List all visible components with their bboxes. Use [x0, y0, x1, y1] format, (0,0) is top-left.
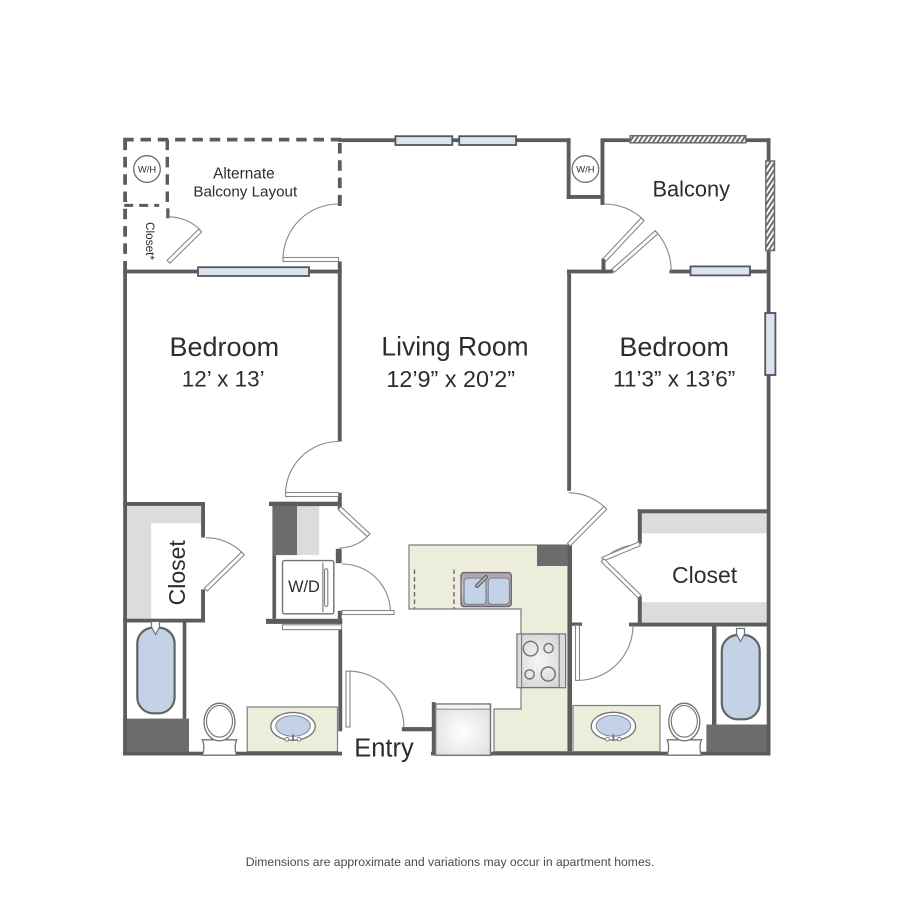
svg-text:Balcony: Balcony: [653, 176, 731, 201]
svg-text:Entry: Entry: [354, 735, 414, 763]
svg-text:W/H: W/H: [576, 163, 594, 174]
svg-text:Living Room: Living Room: [381, 332, 528, 362]
svg-text:11’3” x 13’6”: 11’3” x 13’6”: [613, 367, 735, 392]
svg-text:W/D: W/D: [288, 578, 320, 596]
svg-text:Closet: Closet: [672, 562, 738, 588]
svg-text:Bedroom: Bedroom: [619, 332, 729, 362]
svg-text:12’ x 13’: 12’ x 13’: [182, 367, 265, 392]
svg-text:12’9” x 20’2”: 12’9” x 20’2”: [386, 366, 515, 392]
svg-text:Dimensions are approximate and: Dimensions are approximate and variation…: [246, 855, 654, 869]
svg-text:Closet: Closet: [164, 540, 190, 606]
svg-text:W/H: W/H: [138, 163, 156, 174]
svg-text:Alternate: Alternate: [213, 165, 275, 182]
svg-text:Closet*: Closet*: [143, 222, 157, 260]
svg-text:Balcony Layout: Balcony Layout: [193, 183, 298, 200]
svg-text:Bedroom: Bedroom: [170, 332, 280, 362]
